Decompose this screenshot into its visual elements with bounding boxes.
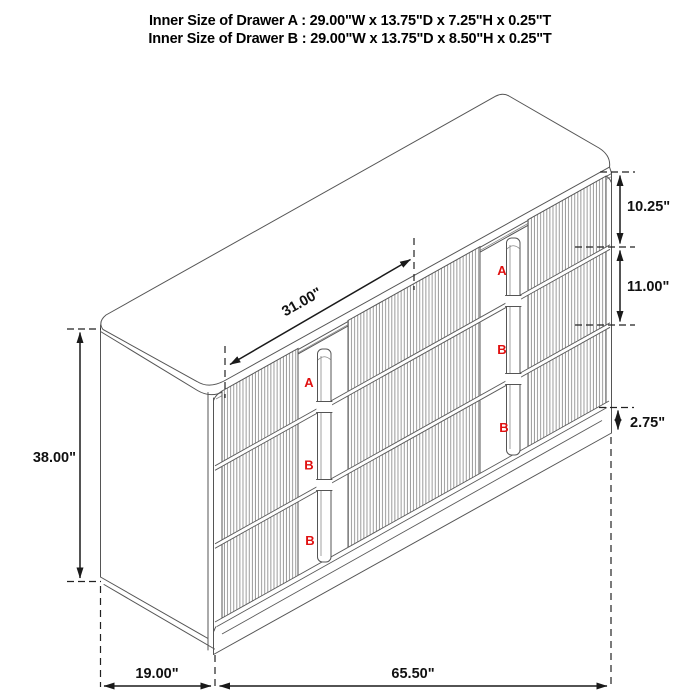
drawer-mark-right-b1: B [497, 342, 506, 357]
drawer-handle-left [316, 349, 332, 562]
drawer-mark-right-b2: B [499, 420, 508, 435]
drawer-mark-right-a: A [497, 263, 507, 278]
diagram-canvas: Inner Size of Drawer A : 29.00"W x 13.75… [0, 0, 700, 700]
dim-base-height-label: 2.75" [630, 415, 665, 431]
dim-drawer-b-label: 11.00" [627, 279, 669, 295]
fluted-section-left [222, 349, 298, 621]
title-line-1: Inner Size of Drawer A : 29.00"W x 13.75… [149, 13, 551, 29]
dim-overall-height: 38.00" [33, 329, 101, 582]
drawer-mark-left-b2: B [305, 533, 314, 548]
fluted-section-right [528, 176, 606, 449]
dim-drawer-a-label: 10.25" [627, 199, 670, 215]
dresser-drawing: A B B A B B [101, 94, 612, 654]
title-block: Inner Size of Drawer A : 29.00"W x 13.75… [148, 13, 551, 47]
dim-overall-depth-label: 19.00" [135, 666, 178, 682]
dim-overall-width-label: 65.50" [391, 666, 434, 682]
title-line-2: Inner Size of Drawer B : 29.00"W x 13.75… [148, 31, 551, 47]
drawer-mark-left-b1: B [304, 458, 313, 473]
dim-base-height: 2.75" [599, 408, 665, 432]
drawer-mark-left-a: A [304, 375, 314, 390]
dresser-dimension-diagram: Inner Size of Drawer A : 29.00"W x 13.75… [0, 0, 700, 700]
dim-overall-height-label: 38.00" [33, 450, 76, 466]
